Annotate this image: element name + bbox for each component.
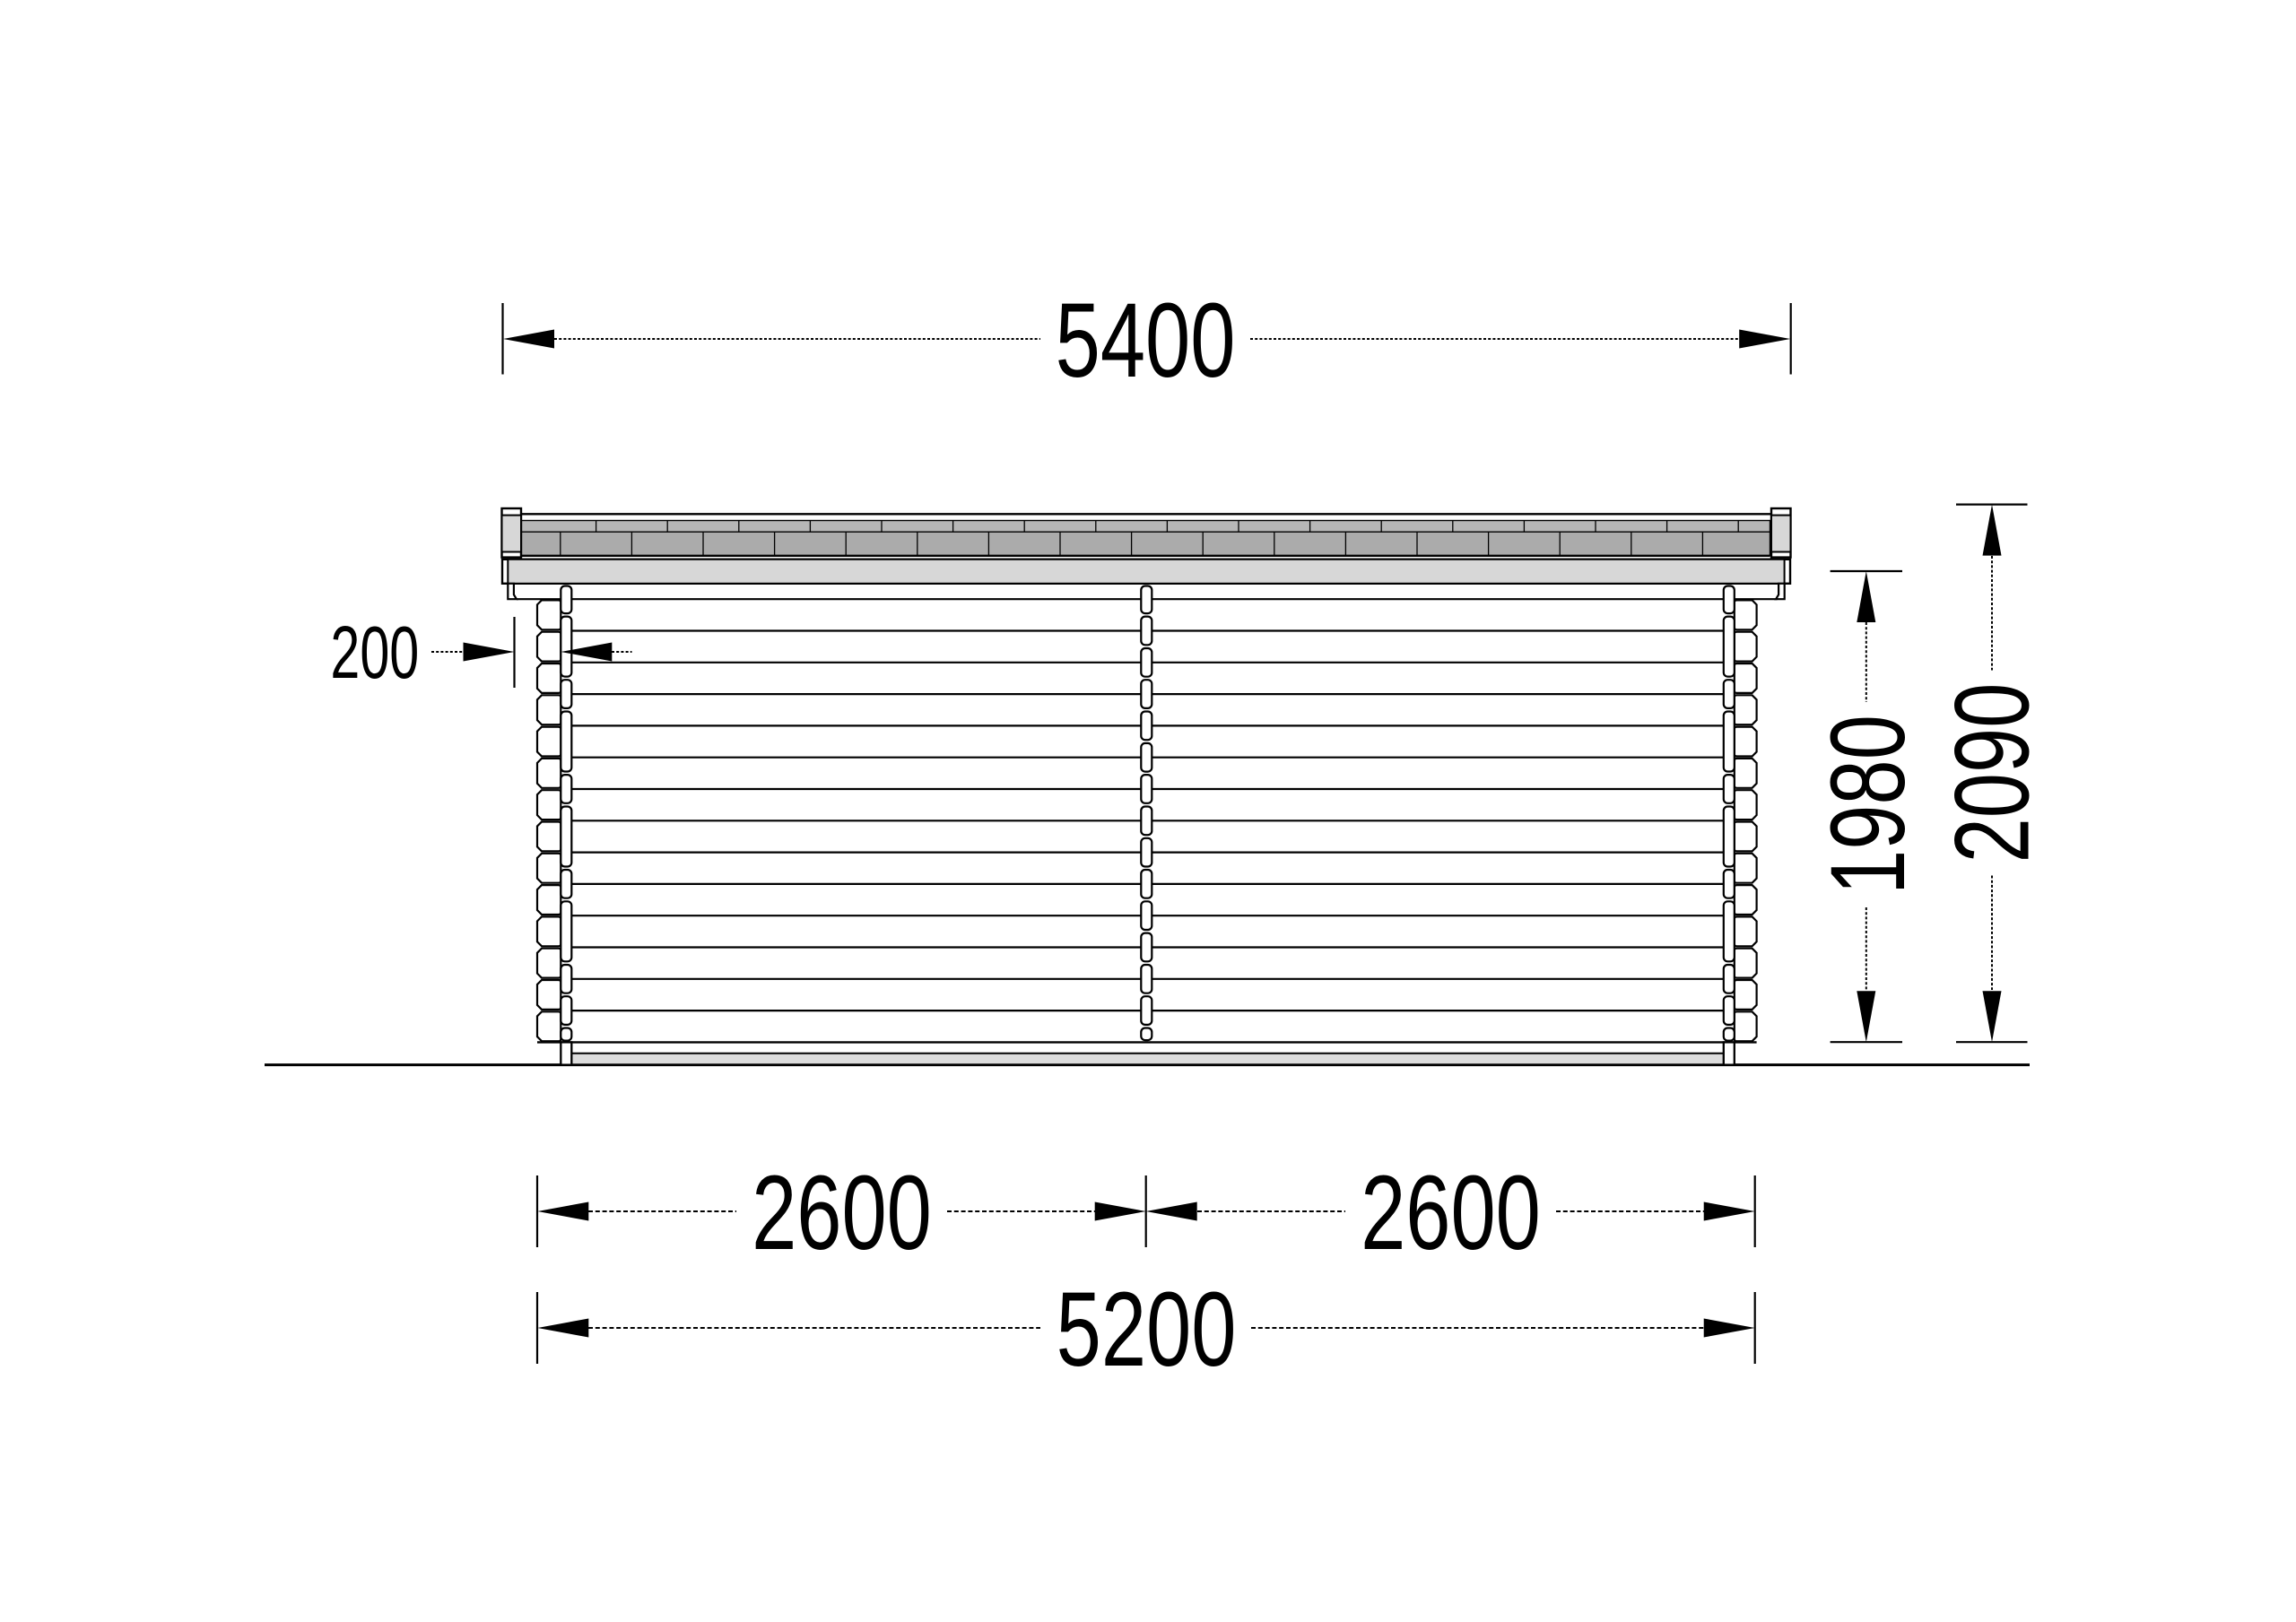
svg-text:200: 200 xyxy=(330,612,419,695)
svg-text:1980: 1980 xyxy=(1809,715,1927,895)
svg-text:2090: 2090 xyxy=(1934,683,2052,863)
svg-text:2600: 2600 xyxy=(752,1154,932,1272)
svg-text:5200: 5200 xyxy=(1057,1271,1237,1389)
svg-text:2600: 2600 xyxy=(1361,1154,1541,1272)
svg-text:5400: 5400 xyxy=(1056,282,1236,400)
